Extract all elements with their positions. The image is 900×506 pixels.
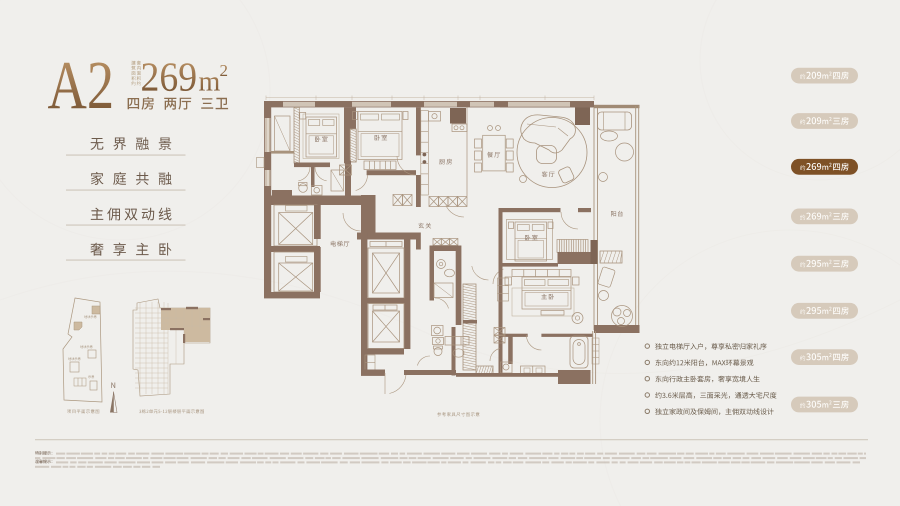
svg-text:m: m [199, 67, 221, 98]
svg-text:A2: A2 [48, 48, 115, 123]
svg-text:2: 2 [220, 61, 229, 80]
svg-text:269: 269 [141, 54, 198, 100]
